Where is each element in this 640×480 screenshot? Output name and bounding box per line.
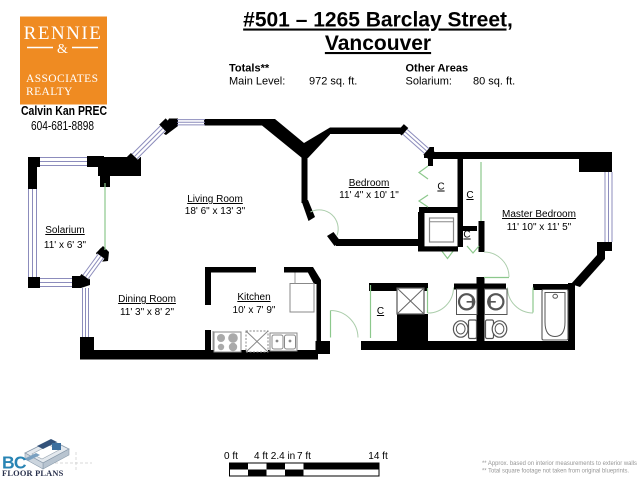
svg-text:80 sq. ft.: 80 sq. ft. bbox=[473, 76, 515, 88]
svg-text:7 ft: 7 ft bbox=[297, 451, 311, 462]
svg-text:4 ft: 4 ft bbox=[254, 451, 268, 462]
svg-text:C: C bbox=[377, 306, 384, 317]
svg-text:Other Areas: Other Areas bbox=[406, 63, 469, 75]
svg-text:ASSOCIATES: ASSOCIATES bbox=[26, 73, 98, 85]
svg-text:0 ft: 0 ft bbox=[224, 451, 238, 462]
svg-text:FLOOR PLANS: FLOOR PLANS bbox=[2, 469, 64, 478]
svg-text:C: C bbox=[466, 190, 473, 201]
svg-text:11' 10" x 11' 5": 11' 10" x 11' 5" bbox=[507, 222, 572, 233]
svg-text:Vancouver: Vancouver bbox=[325, 32, 431, 55]
svg-text:C: C bbox=[463, 230, 470, 241]
svg-text:Bedroom: Bedroom bbox=[349, 178, 390, 189]
svg-text:14 ft: 14 ft bbox=[368, 451, 388, 462]
svg-text:972 sq. ft.: 972 sq. ft. bbox=[309, 76, 357, 88]
svg-text:Solarium: Solarium bbox=[45, 225, 84, 236]
svg-text:604-681-8898: 604-681-8898 bbox=[31, 119, 94, 133]
svg-text:RENNIE: RENNIE bbox=[24, 23, 103, 44]
svg-text:** Total square footage not ta: ** Total square footage not taken from o… bbox=[482, 468, 629, 475]
svg-text:Dining Room: Dining Room bbox=[118, 294, 176, 305]
svg-text:REALTY: REALTY bbox=[26, 86, 73, 98]
svg-text:&: & bbox=[57, 42, 68, 57]
svg-text:Totals**: Totals** bbox=[229, 63, 270, 75]
svg-text:11' 3" x 8' 2": 11' 3" x 8' 2" bbox=[120, 307, 175, 318]
svg-text:C: C bbox=[437, 182, 444, 193]
svg-text:Living Room: Living Room bbox=[187, 194, 243, 205]
svg-text:18' 6" x 13' 3": 18' 6" x 13' 3" bbox=[185, 206, 246, 217]
svg-text:Calvin Kan PREC: Calvin Kan PREC bbox=[21, 103, 107, 118]
svg-text:** Approx. based on interior m: ** Approx. based on interior measurement… bbox=[482, 460, 638, 467]
svg-text:Master Bedroom: Master Bedroom bbox=[502, 209, 576, 220]
svg-text:11' 4" x 10' 1": 11' 4" x 10' 1" bbox=[339, 190, 399, 201]
svg-text:Kitchen: Kitchen bbox=[237, 292, 270, 303]
svg-text:#501 – 1265 Barclay Street,: #501 – 1265 Barclay Street, bbox=[243, 9, 513, 32]
svg-text:Main Level:: Main Level: bbox=[229, 76, 285, 88]
svg-text:Solarium:: Solarium: bbox=[406, 76, 452, 88]
svg-text:11' x 6' 3": 11' x 6' 3" bbox=[44, 240, 87, 251]
svg-text:10' x 7' 9": 10' x 7' 9" bbox=[233, 305, 276, 316]
svg-text:2.4 in: 2.4 in bbox=[271, 451, 295, 462]
